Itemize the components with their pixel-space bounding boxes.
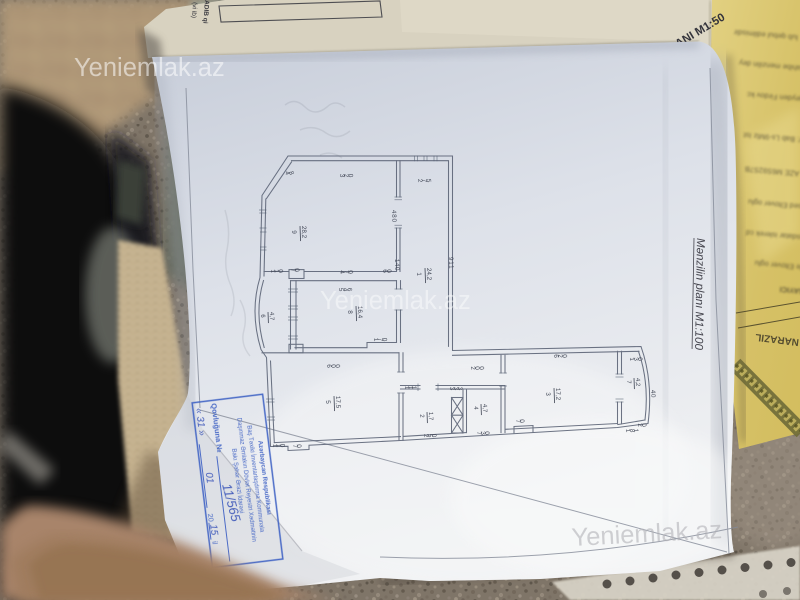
svg-text:60: 60 — [381, 269, 392, 274]
svg-text:333: 333 — [448, 387, 463, 392]
svg-text:250: 250 — [422, 434, 437, 439]
svg-text:17,5: 17,5 — [334, 396, 341, 409]
svg-text:470: 470 — [338, 270, 354, 275]
svg-text:70: 70 — [291, 444, 302, 449]
svg-text:480: 480 — [390, 210, 397, 223]
svg-text:20: 20 — [206, 513, 216, 522]
svg-text:181: 181 — [624, 429, 639, 434]
svg-text:911: 911 — [447, 257, 454, 270]
svg-text:24,2: 24,2 — [425, 268, 432, 281]
svg-text:170: 170 — [372, 338, 388, 343]
svg-text:70: 70 — [289, 268, 300, 273]
svg-text:(vi ib): (vi ib) — [190, 2, 198, 18]
svg-text:730: 730 — [475, 431, 490, 436]
svg-text:Mənzilin planı M1:100: Mənzilin planı M1:100 — [692, 238, 706, 351]
svg-text:4,2: 4,2 — [634, 378, 640, 387]
svg-text:70: 70 — [514, 419, 525, 424]
svg-text:Yeniemlak.az: Yeniemlak.az — [74, 54, 225, 82]
svg-text:4,7: 4,7 — [268, 312, 274, 321]
svg-text:28,2: 28,2 — [300, 226, 307, 239]
svg-text:SAYICI: SAYICI — [779, 285, 800, 296]
svg-text:320: 320 — [338, 174, 354, 179]
svg-text:275: 275 — [416, 179, 432, 184]
svg-text:40: 40 — [649, 390, 656, 398]
svg-text:110: 110 — [271, 444, 286, 449]
svg-text:Yeniemlak.az: Yeniemlak.az — [320, 287, 471, 315]
svg-text:620: 620 — [552, 354, 568, 359]
svg-text:01: 01 — [203, 472, 215, 484]
svg-text:17,2: 17,2 — [554, 388, 561, 401]
svg-text:1,7: 1,7 — [427, 412, 433, 421]
svg-text:4,7: 4,7 — [481, 404, 487, 413]
svg-text:130: 130 — [628, 357, 643, 362]
svg-text:20: 20 — [636, 423, 647, 428]
svg-text:200: 200 — [469, 366, 485, 371]
svg-text:110: 110 — [269, 269, 284, 274]
svg-text:140: 140 — [393, 259, 400, 271]
svg-text:600: 600 — [325, 364, 341, 369]
